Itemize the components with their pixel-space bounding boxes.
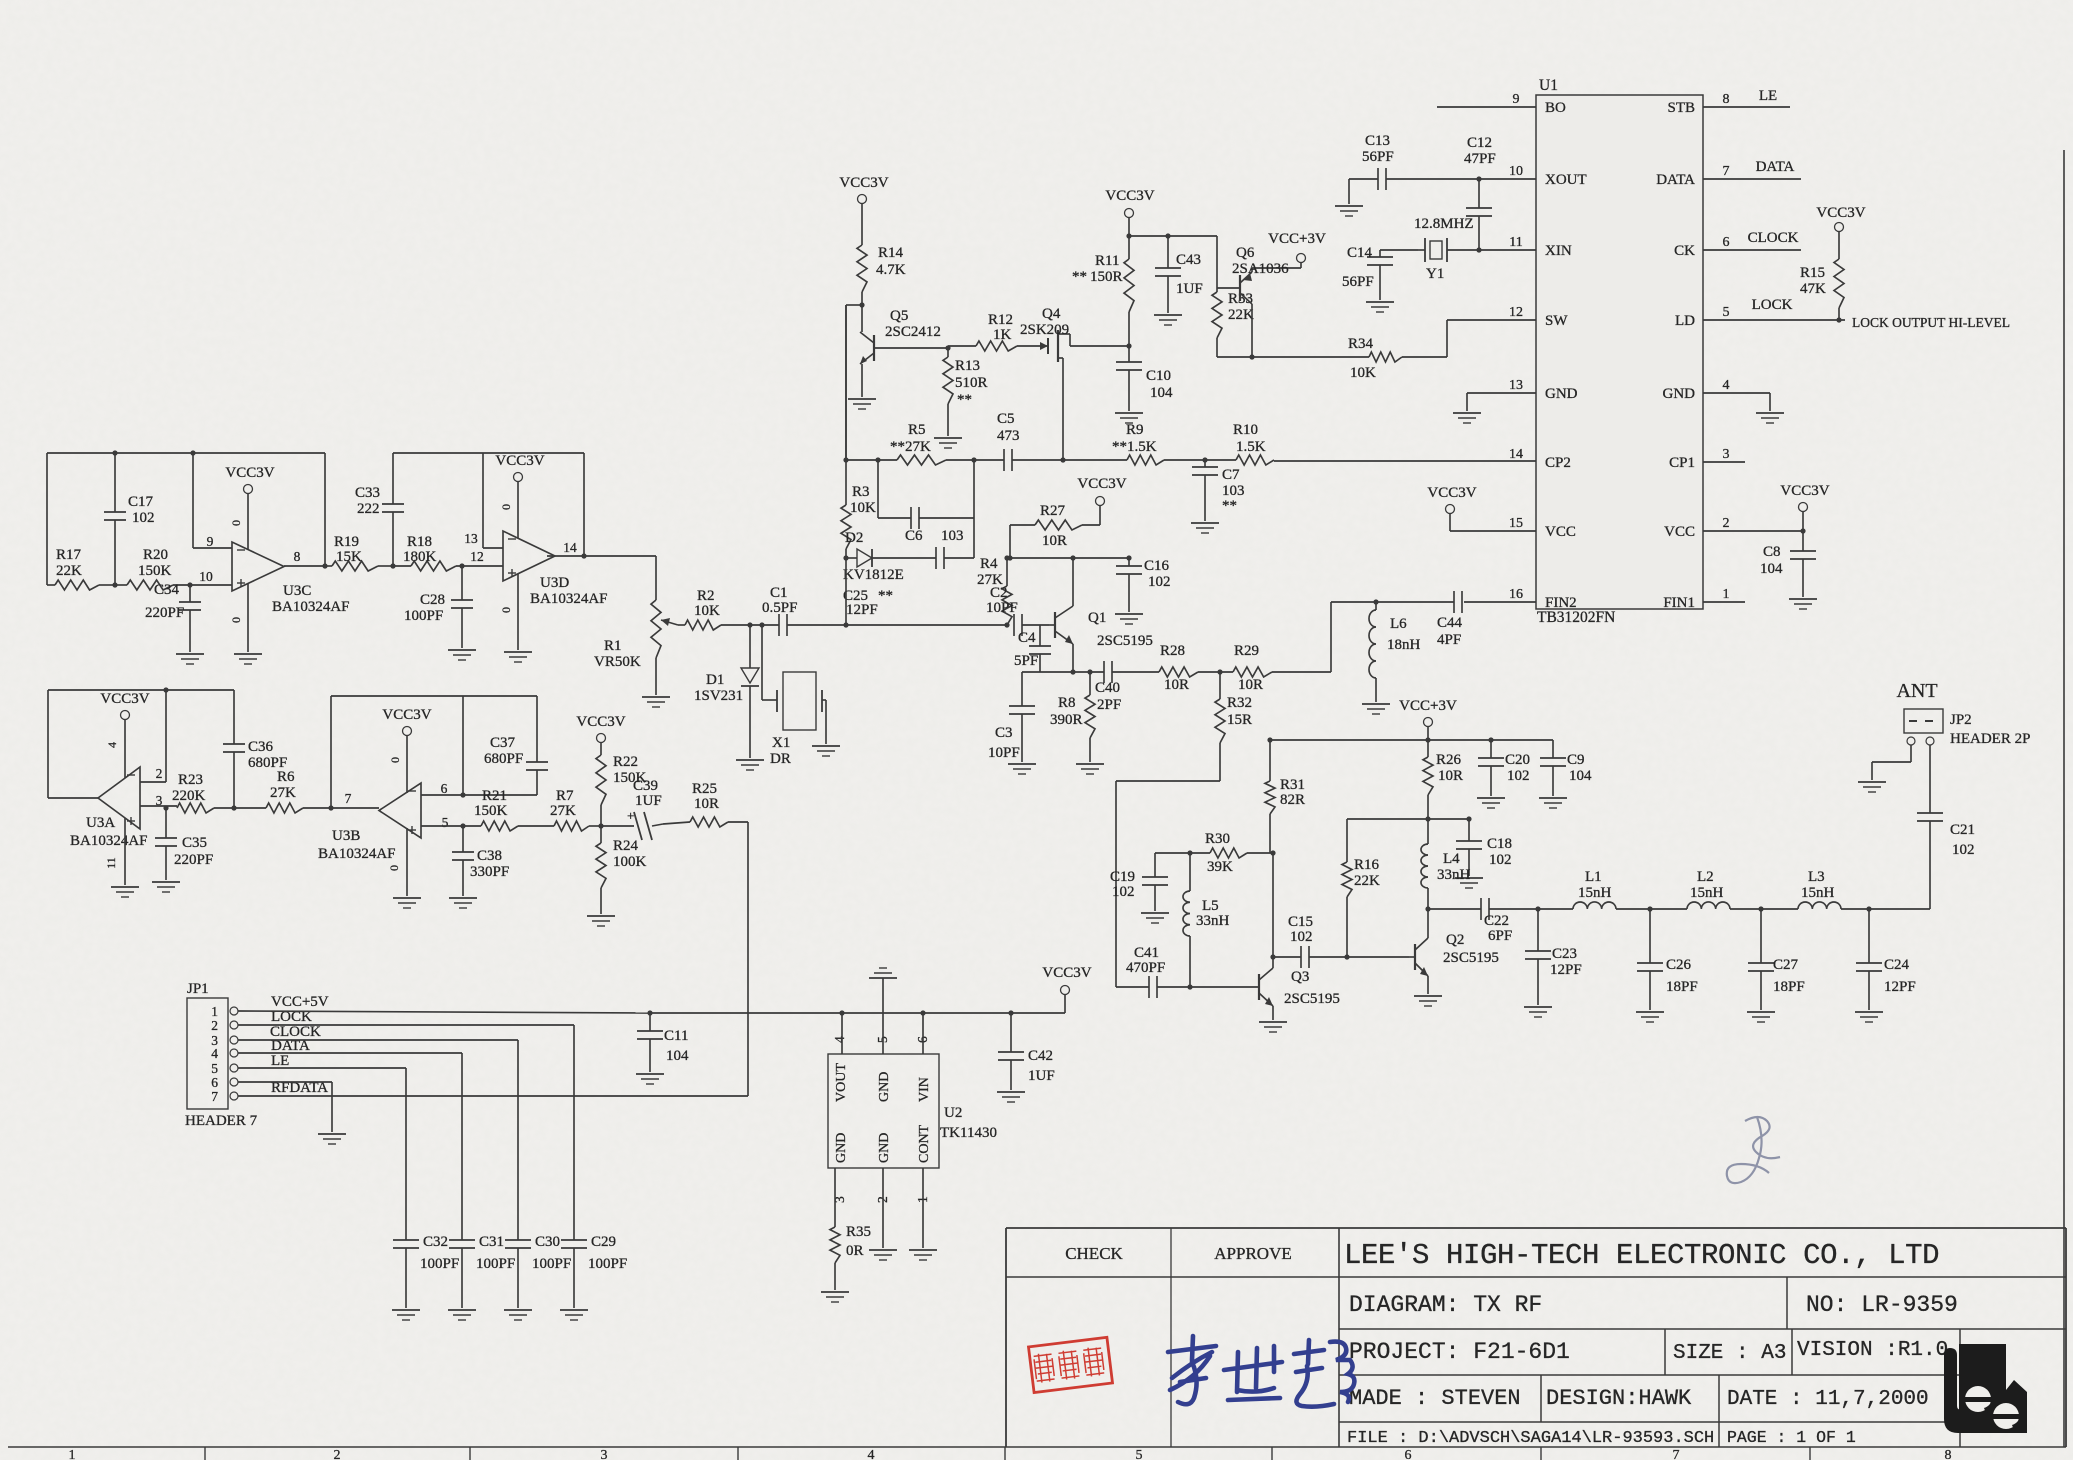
svg-text:L6: L6 (1390, 616, 1407, 632)
svg-text:LD: LD (1675, 313, 1695, 329)
svg-text:R10: R10 (1233, 422, 1258, 438)
svg-text:R22: R22 (613, 754, 638, 770)
svg-text:1K: 1K (993, 327, 1012, 343)
svg-text:47PF: 47PF (1464, 151, 1496, 167)
svg-text:15nH: 15nH (1801, 885, 1835, 901)
svg-text:9: 9 (207, 534, 214, 549)
svg-text:47K: 47K (1800, 281, 1826, 297)
svg-text:150R: 150R (1090, 269, 1123, 285)
svg-text:R27: R27 (1040, 503, 1066, 519)
svg-text:FILE : D:\ADVSCH\SAGA14\LR-935: FILE : D:\ADVSCH\SAGA14\LR-93593.SCH (1347, 1429, 1714, 1448)
svg-text:C1: C1 (770, 585, 788, 601)
svg-text:10R: 10R (1042, 533, 1067, 549)
svg-text:KV1812E: KV1812E (843, 567, 904, 583)
svg-text:DESIGN:HAWK: DESIGN:HAWK (1546, 1386, 1692, 1411)
svg-text:CHECK: CHECK (1065, 1244, 1123, 1263)
svg-text:R28: R28 (1160, 643, 1185, 659)
svg-text:10R: 10R (1238, 677, 1263, 693)
svg-text:C2: C2 (990, 585, 1008, 601)
svg-text:12PF: 12PF (1884, 979, 1916, 995)
svg-text:L4: L4 (1443, 851, 1460, 867)
svg-text:MADE : STEVEN: MADE : STEVEN (1349, 1386, 1521, 1411)
svg-text:4: 4 (105, 742, 119, 748)
svg-text:C31: C31 (479, 1234, 504, 1250)
svg-text:VCC+5V: VCC+5V (271, 994, 329, 1010)
svg-text:Y1: Y1 (1426, 266, 1444, 282)
svg-text:HEADER 2P: HEADER 2P (1950, 731, 2030, 747)
svg-text:2: 2 (334, 1448, 341, 1460)
svg-text:680PF: 680PF (484, 751, 523, 767)
svg-text:102: 102 (1290, 929, 1313, 945)
svg-text:R21: R21 (482, 788, 507, 804)
svg-text:GND: GND (1545, 386, 1578, 402)
svg-text:VCC3V: VCC3V (225, 465, 274, 481)
svg-text:Q3: Q3 (1291, 969, 1309, 985)
svg-text:C6: C6 (905, 528, 923, 544)
svg-text:8: 8 (294, 549, 301, 564)
svg-text:14: 14 (1509, 447, 1523, 462)
svg-text:222: 222 (357, 501, 380, 517)
svg-text:R35: R35 (846, 1224, 871, 1240)
svg-text:R5: R5 (908, 422, 926, 438)
svg-text:Q2: Q2 (1446, 932, 1464, 948)
svg-text:27K: 27K (550, 803, 576, 819)
svg-text:9: 9 (1513, 92, 1520, 107)
svg-text:LE: LE (271, 1053, 289, 1069)
svg-text:L1: L1 (1585, 869, 1602, 885)
svg-text:LOCK OUTPUT HI-LEVEL: LOCK OUTPUT HI-LEVEL (1852, 315, 2010, 330)
svg-text:104: 104 (1760, 561, 1783, 577)
svg-text:L2: L2 (1697, 869, 1714, 885)
svg-text:C23: C23 (1552, 946, 1577, 962)
svg-text:C20: C20 (1505, 752, 1530, 768)
svg-text:104: 104 (666, 1048, 689, 1064)
svg-text:NO: LR-9359: NO: LR-9359 (1806, 1292, 1958, 1318)
svg-text:LOCK: LOCK (1752, 297, 1793, 313)
svg-text:390R: 390R (1050, 712, 1083, 728)
svg-text:10K: 10K (1350, 365, 1376, 381)
svg-text:2: 2 (211, 1018, 218, 1033)
svg-text:**27K: **27K (890, 439, 931, 455)
svg-text:R24: R24 (613, 838, 639, 854)
svg-text:6: 6 (441, 781, 448, 796)
svg-text:VCC: VCC (1545, 524, 1576, 540)
svg-text:U3A: U3A (86, 815, 115, 831)
svg-text:C19: C19 (1110, 869, 1135, 885)
svg-text:R17: R17 (56, 547, 82, 563)
svg-text:16: 16 (1509, 587, 1523, 602)
svg-text:15: 15 (1509, 516, 1523, 531)
svg-text:R4: R4 (980, 556, 998, 572)
svg-text:10R: 10R (1438, 768, 1463, 784)
svg-text:4: 4 (832, 1036, 847, 1043)
svg-text:LEE'S HIGH-TECH ELECTRONIC CO.: LEE'S HIGH-TECH ELECTRONIC CO., LTD (1344, 1239, 1939, 1272)
svg-text:C36: C36 (248, 739, 274, 755)
svg-text:R29: R29 (1234, 643, 1259, 659)
svg-text:R31: R31 (1280, 777, 1305, 793)
svg-text:R30: R30 (1205, 831, 1230, 847)
svg-text:18PF: 18PF (1773, 979, 1805, 995)
svg-text:22K: 22K (1354, 873, 1380, 889)
svg-text:C42: C42 (1028, 1048, 1053, 1064)
svg-text:7: 7 (345, 791, 352, 806)
svg-text:6PF: 6PF (1488, 928, 1512, 944)
svg-text:7: 7 (1723, 164, 1730, 179)
svg-text:**: ** (878, 588, 893, 604)
svg-text:0: 0 (387, 865, 401, 871)
svg-text:C34: C34 (154, 582, 180, 598)
svg-text:2SC5195: 2SC5195 (1284, 991, 1340, 1007)
svg-text:R15: R15 (1800, 265, 1825, 281)
svg-text:R2: R2 (697, 588, 715, 604)
svg-text:2SC5195: 2SC5195 (1097, 633, 1153, 649)
svg-text:ANT: ANT (1896, 680, 1937, 702)
svg-text:Q5: Q5 (890, 308, 908, 324)
svg-text:C27: C27 (1773, 957, 1799, 973)
svg-text:VISION :R1.0: VISION :R1.0 (1797, 1339, 1948, 1362)
svg-text:VCC: VCC (1664, 524, 1695, 540)
svg-text:102: 102 (1148, 574, 1171, 590)
svg-text:GND: GND (1663, 386, 1696, 402)
svg-text:DIAGRAM: TX RF: DIAGRAM: TX RF (1349, 1292, 1542, 1318)
svg-text:C24: C24 (1884, 957, 1910, 973)
svg-text:0: 0 (229, 520, 243, 526)
svg-text:C32: C32 (423, 1234, 448, 1250)
svg-text:C37: C37 (490, 735, 516, 751)
svg-text:14: 14 (563, 540, 577, 555)
svg-text:C3: C3 (995, 725, 1013, 741)
svg-text:FIN2: FIN2 (1545, 595, 1577, 611)
svg-text:C43: C43 (1176, 252, 1201, 268)
svg-text:150K: 150K (138, 563, 172, 579)
svg-text:C28: C28 (420, 592, 445, 608)
svg-text:2SC5195: 2SC5195 (1443, 950, 1499, 966)
svg-text:12: 12 (470, 549, 484, 564)
svg-text:10PF: 10PF (988, 745, 1020, 761)
svg-text:100PF: 100PF (476, 1256, 515, 1272)
svg-text:VCC3V: VCC3V (1780, 483, 1829, 499)
svg-text:CP2: CP2 (1545, 455, 1571, 471)
svg-text:180K: 180K (403, 549, 437, 565)
svg-text:BA10324AF: BA10324AF (318, 846, 396, 862)
svg-text:10: 10 (199, 569, 213, 584)
svg-text:12PF: 12PF (1550, 962, 1582, 978)
svg-text:R18: R18 (407, 534, 432, 550)
svg-text:R6: R6 (277, 769, 295, 785)
svg-text:C22: C22 (1484, 913, 1509, 929)
svg-text:BA10324AF: BA10324AF (530, 591, 608, 607)
svg-text:C8: C8 (1763, 544, 1781, 560)
svg-text:5: 5 (1136, 1448, 1143, 1460)
svg-text:VCC3V: VCC3V (100, 691, 149, 707)
svg-text:104: 104 (1569, 768, 1592, 784)
svg-text:L5: L5 (1202, 898, 1219, 914)
svg-text:CP1: CP1 (1669, 455, 1695, 471)
svg-text:473: 473 (997, 428, 1020, 444)
svg-text:GND: GND (834, 1133, 849, 1163)
svg-text:102: 102 (132, 510, 155, 526)
svg-text:3: 3 (601, 1448, 608, 1460)
svg-text:Q4: Q4 (1042, 306, 1061, 322)
svg-text:SIZE : A3: SIZE : A3 (1673, 1342, 1786, 1365)
svg-text:U3B: U3B (332, 828, 360, 844)
svg-text:U2: U2 (944, 1105, 962, 1121)
svg-text:DR: DR (770, 751, 791, 767)
svg-text:R7: R7 (556, 788, 574, 804)
svg-text:STB: STB (1667, 100, 1695, 116)
svg-text:R3: R3 (852, 484, 870, 500)
svg-text:1.5K: 1.5K (1236, 439, 1266, 455)
svg-text:33nH: 33nH (1437, 867, 1471, 883)
svg-text:220PF: 220PF (174, 852, 213, 868)
svg-text:4PF: 4PF (1437, 632, 1461, 648)
svg-text:10: 10 (1509, 164, 1523, 179)
svg-text:BA10324AF: BA10324AF (272, 599, 350, 615)
svg-text:DATA: DATA (1756, 159, 1795, 175)
svg-text:VCC3V: VCC3V (1077, 476, 1126, 492)
svg-text:15nH: 15nH (1578, 885, 1612, 901)
svg-text:VCC3V: VCC3V (382, 707, 431, 723)
svg-text:D2: D2 (845, 530, 863, 546)
svg-text:C10: C10 (1146, 368, 1171, 384)
svg-text:Q6: Q6 (1236, 245, 1255, 261)
svg-text:CK: CK (1674, 243, 1695, 259)
svg-text:X1: X1 (772, 735, 790, 751)
svg-text:C33: C33 (355, 485, 380, 501)
svg-text:R8: R8 (1058, 695, 1076, 711)
svg-text:6: 6 (1723, 235, 1730, 250)
svg-text:0: 0 (499, 504, 513, 510)
svg-text:FIN1: FIN1 (1663, 595, 1695, 611)
svg-text:TB31202FN: TB31202FN (1537, 609, 1615, 626)
svg-text:10R: 10R (1164, 677, 1189, 693)
svg-text:DATA: DATA (1656, 172, 1695, 188)
svg-text:5PF: 5PF (1014, 653, 1038, 669)
svg-text:102: 102 (1952, 842, 1975, 858)
svg-text:100K: 100K (613, 854, 647, 870)
svg-text:103: 103 (1222, 483, 1245, 499)
svg-text:22K: 22K (56, 563, 82, 579)
svg-text:VCC3V: VCC3V (1816, 205, 1865, 221)
svg-text:13: 13 (464, 531, 478, 546)
svg-text:**: ** (957, 392, 972, 408)
svg-text:2SA1036: 2SA1036 (1232, 261, 1289, 277)
svg-text:BO: BO (1545, 100, 1566, 116)
svg-text:10K: 10K (850, 500, 876, 516)
svg-text:R19: R19 (334, 534, 359, 550)
svg-text:15nH: 15nH (1690, 885, 1724, 901)
svg-text:R25: R25 (692, 781, 717, 797)
svg-text:11: 11 (1509, 235, 1522, 250)
svg-text:C16: C16 (1144, 558, 1170, 574)
svg-text:102: 102 (1112, 884, 1135, 900)
svg-text:3: 3 (1723, 447, 1730, 462)
svg-text:C44: C44 (1437, 615, 1463, 631)
svg-text:470PF: 470PF (1126, 960, 1165, 976)
svg-text:1UF: 1UF (1028, 1068, 1055, 1084)
svg-text:VOUT: VOUT (834, 1063, 849, 1102)
svg-text:12PF: 12PF (846, 602, 878, 618)
svg-text:12: 12 (1509, 305, 1523, 320)
svg-text:2SC2412: 2SC2412 (885, 324, 941, 340)
svg-text:2: 2 (156, 766, 163, 781)
svg-text:2: 2 (1723, 516, 1730, 531)
svg-text:APPROVE: APPROVE (1214, 1244, 1291, 1263)
svg-text:R32: R32 (1227, 695, 1252, 711)
svg-text:5: 5 (211, 1061, 218, 1076)
svg-text:CLOCK: CLOCK (1748, 230, 1799, 246)
svg-text:C38: C38 (477, 848, 502, 864)
svg-text:1UF: 1UF (1176, 281, 1203, 297)
svg-text:JP2: JP2 (1950, 712, 1972, 728)
svg-text:JP1: JP1 (187, 981, 209, 997)
svg-text:R23: R23 (178, 772, 203, 788)
svg-text:SW: SW (1545, 313, 1568, 329)
svg-text:VR50K: VR50K (594, 654, 641, 670)
svg-text:6: 6 (1405, 1448, 1412, 1460)
svg-text:0: 0 (499, 607, 513, 613)
svg-text:8: 8 (1723, 92, 1730, 107)
svg-text:U3D: U3D (540, 575, 569, 591)
svg-text:**: ** (1072, 269, 1087, 285)
svg-text:XOUT: XOUT (1545, 172, 1587, 188)
svg-text:100PF: 100PF (420, 1256, 459, 1272)
svg-text:C18: C18 (1487, 836, 1512, 852)
svg-text:DATE : 11,7,2000: DATE : 11,7,2000 (1727, 1388, 1929, 1411)
svg-text:VCC3V: VCC3V (576, 714, 625, 730)
svg-text:R13: R13 (955, 358, 980, 374)
svg-text:102: 102 (1507, 768, 1530, 784)
svg-text:R11: R11 (1095, 253, 1119, 269)
svg-text:2PF: 2PF (1097, 697, 1121, 713)
svg-text:1: 1 (211, 1004, 218, 1019)
svg-text:4: 4 (211, 1046, 218, 1061)
svg-text:Q1: Q1 (1088, 610, 1106, 626)
svg-text:C26: C26 (1666, 957, 1692, 973)
svg-text:C39: C39 (633, 778, 658, 794)
svg-text:C12: C12 (1467, 135, 1492, 151)
svg-text:15K: 15K (336, 549, 362, 565)
svg-text:1: 1 (1723, 587, 1730, 602)
svg-text:5: 5 (1723, 305, 1730, 320)
svg-text:12.8MHZ: 12.8MHZ (1414, 216, 1474, 232)
svg-text:103: 103 (941, 528, 964, 544)
svg-text:3: 3 (156, 793, 163, 808)
svg-text:220PF: 220PF (145, 605, 184, 621)
svg-text:R26: R26 (1436, 752, 1462, 768)
svg-text:GND: GND (877, 1133, 892, 1163)
svg-text:27K: 27K (270, 785, 296, 801)
svg-text:82R: 82R (1280, 792, 1305, 808)
svg-text:18nH: 18nH (1387, 637, 1421, 653)
svg-text:56PF: 56PF (1362, 149, 1394, 165)
svg-text:VCC3V: VCC3V (1105, 188, 1154, 204)
svg-text:C35: C35 (182, 835, 207, 851)
svg-text:1UF: 1UF (635, 793, 662, 809)
svg-text:150K: 150K (474, 803, 508, 819)
svg-text:GND: GND (877, 1072, 892, 1102)
svg-text:8: 8 (1945, 1448, 1952, 1460)
svg-text:10R: 10R (694, 796, 719, 812)
svg-text:10K: 10K (694, 603, 720, 619)
svg-text:U3C: U3C (283, 583, 311, 599)
svg-text:BA10324AF: BA10324AF (70, 833, 148, 849)
svg-text:CONT: CONT (917, 1124, 932, 1163)
svg-text:C13: C13 (1365, 133, 1390, 149)
svg-text:10PF: 10PF (986, 600, 1018, 616)
svg-text:C7: C7 (1222, 467, 1240, 483)
svg-text:15R: 15R (1227, 712, 1252, 728)
svg-text:HEADER 7: HEADER 7 (185, 1113, 258, 1129)
svg-text:18PF: 18PF (1666, 979, 1698, 995)
svg-text:100PF: 100PF (588, 1256, 627, 1272)
svg-text:**: ** (1222, 498, 1237, 514)
svg-text:2SK209: 2SK209 (1020, 322, 1069, 338)
svg-text:VCC+3V: VCC+3V (1268, 231, 1326, 247)
svg-text:7: 7 (211, 1089, 218, 1104)
svg-text:4.7K: 4.7K (876, 262, 906, 278)
svg-text:PAGE : 1 OF 1: PAGE : 1 OF 1 (1727, 1428, 1856, 1447)
svg-text:**1.5K: **1.5K (1112, 439, 1157, 455)
svg-text:11: 11 (104, 857, 118, 869)
svg-text:TK11430: TK11430 (940, 1125, 997, 1141)
svg-text:100PF: 100PF (404, 608, 443, 624)
svg-text:C41: C41 (1134, 945, 1159, 961)
svg-text:R1: R1 (604, 638, 622, 654)
svg-text:100PF: 100PF (532, 1256, 571, 1272)
svg-text:C14: C14 (1347, 245, 1373, 261)
svg-text:33nH: 33nH (1196, 913, 1230, 929)
svg-text:C5: C5 (997, 411, 1015, 427)
svg-text:R20: R20 (143, 547, 168, 563)
svg-text:VCC3V: VCC3V (839, 175, 888, 191)
svg-text:LE: LE (1759, 88, 1777, 104)
svg-text:1SV231: 1SV231 (694, 688, 743, 704)
svg-text:7: 7 (1673, 1448, 1680, 1460)
svg-text:C40: C40 (1095, 680, 1120, 696)
svg-text:22K: 22K (1228, 307, 1254, 323)
svg-text:+: + (627, 808, 634, 823)
svg-text:C17: C17 (128, 494, 154, 510)
svg-text:L3: L3 (1808, 869, 1825, 885)
svg-text:D1: D1 (706, 672, 724, 688)
svg-text:39K: 39K (1207, 859, 1233, 875)
svg-text:U1: U1 (1539, 77, 1558, 94)
svg-text:C4: C4 (1018, 630, 1036, 646)
svg-text:PROJECT: F21-6D1: PROJECT: F21-6D1 (1349, 1339, 1570, 1365)
svg-text:104: 104 (1150, 385, 1173, 401)
svg-text:510R: 510R (955, 375, 988, 391)
svg-text:13: 13 (1509, 378, 1523, 393)
svg-text:C30: C30 (535, 1234, 560, 1250)
svg-text:VCC3V: VCC3V (1042, 965, 1091, 981)
svg-text:R14: R14 (878, 245, 904, 261)
svg-text:0.5PF: 0.5PF (762, 600, 797, 616)
svg-text:C11: C11 (664, 1028, 688, 1044)
svg-text:R34: R34 (1348, 336, 1374, 352)
svg-text:C21: C21 (1950, 822, 1975, 838)
svg-text:XIN: XIN (1545, 243, 1572, 259)
svg-text:56PF: 56PF (1342, 274, 1374, 290)
svg-text:C9: C9 (1567, 752, 1585, 768)
svg-text:4: 4 (1723, 378, 1730, 393)
svg-text:4: 4 (868, 1448, 875, 1460)
svg-text:6: 6 (211, 1075, 218, 1090)
svg-text:0R: 0R (846, 1243, 864, 1259)
svg-text:C29: C29 (591, 1234, 616, 1250)
svg-text:5: 5 (442, 815, 449, 830)
svg-text:R9: R9 (1126, 422, 1144, 438)
